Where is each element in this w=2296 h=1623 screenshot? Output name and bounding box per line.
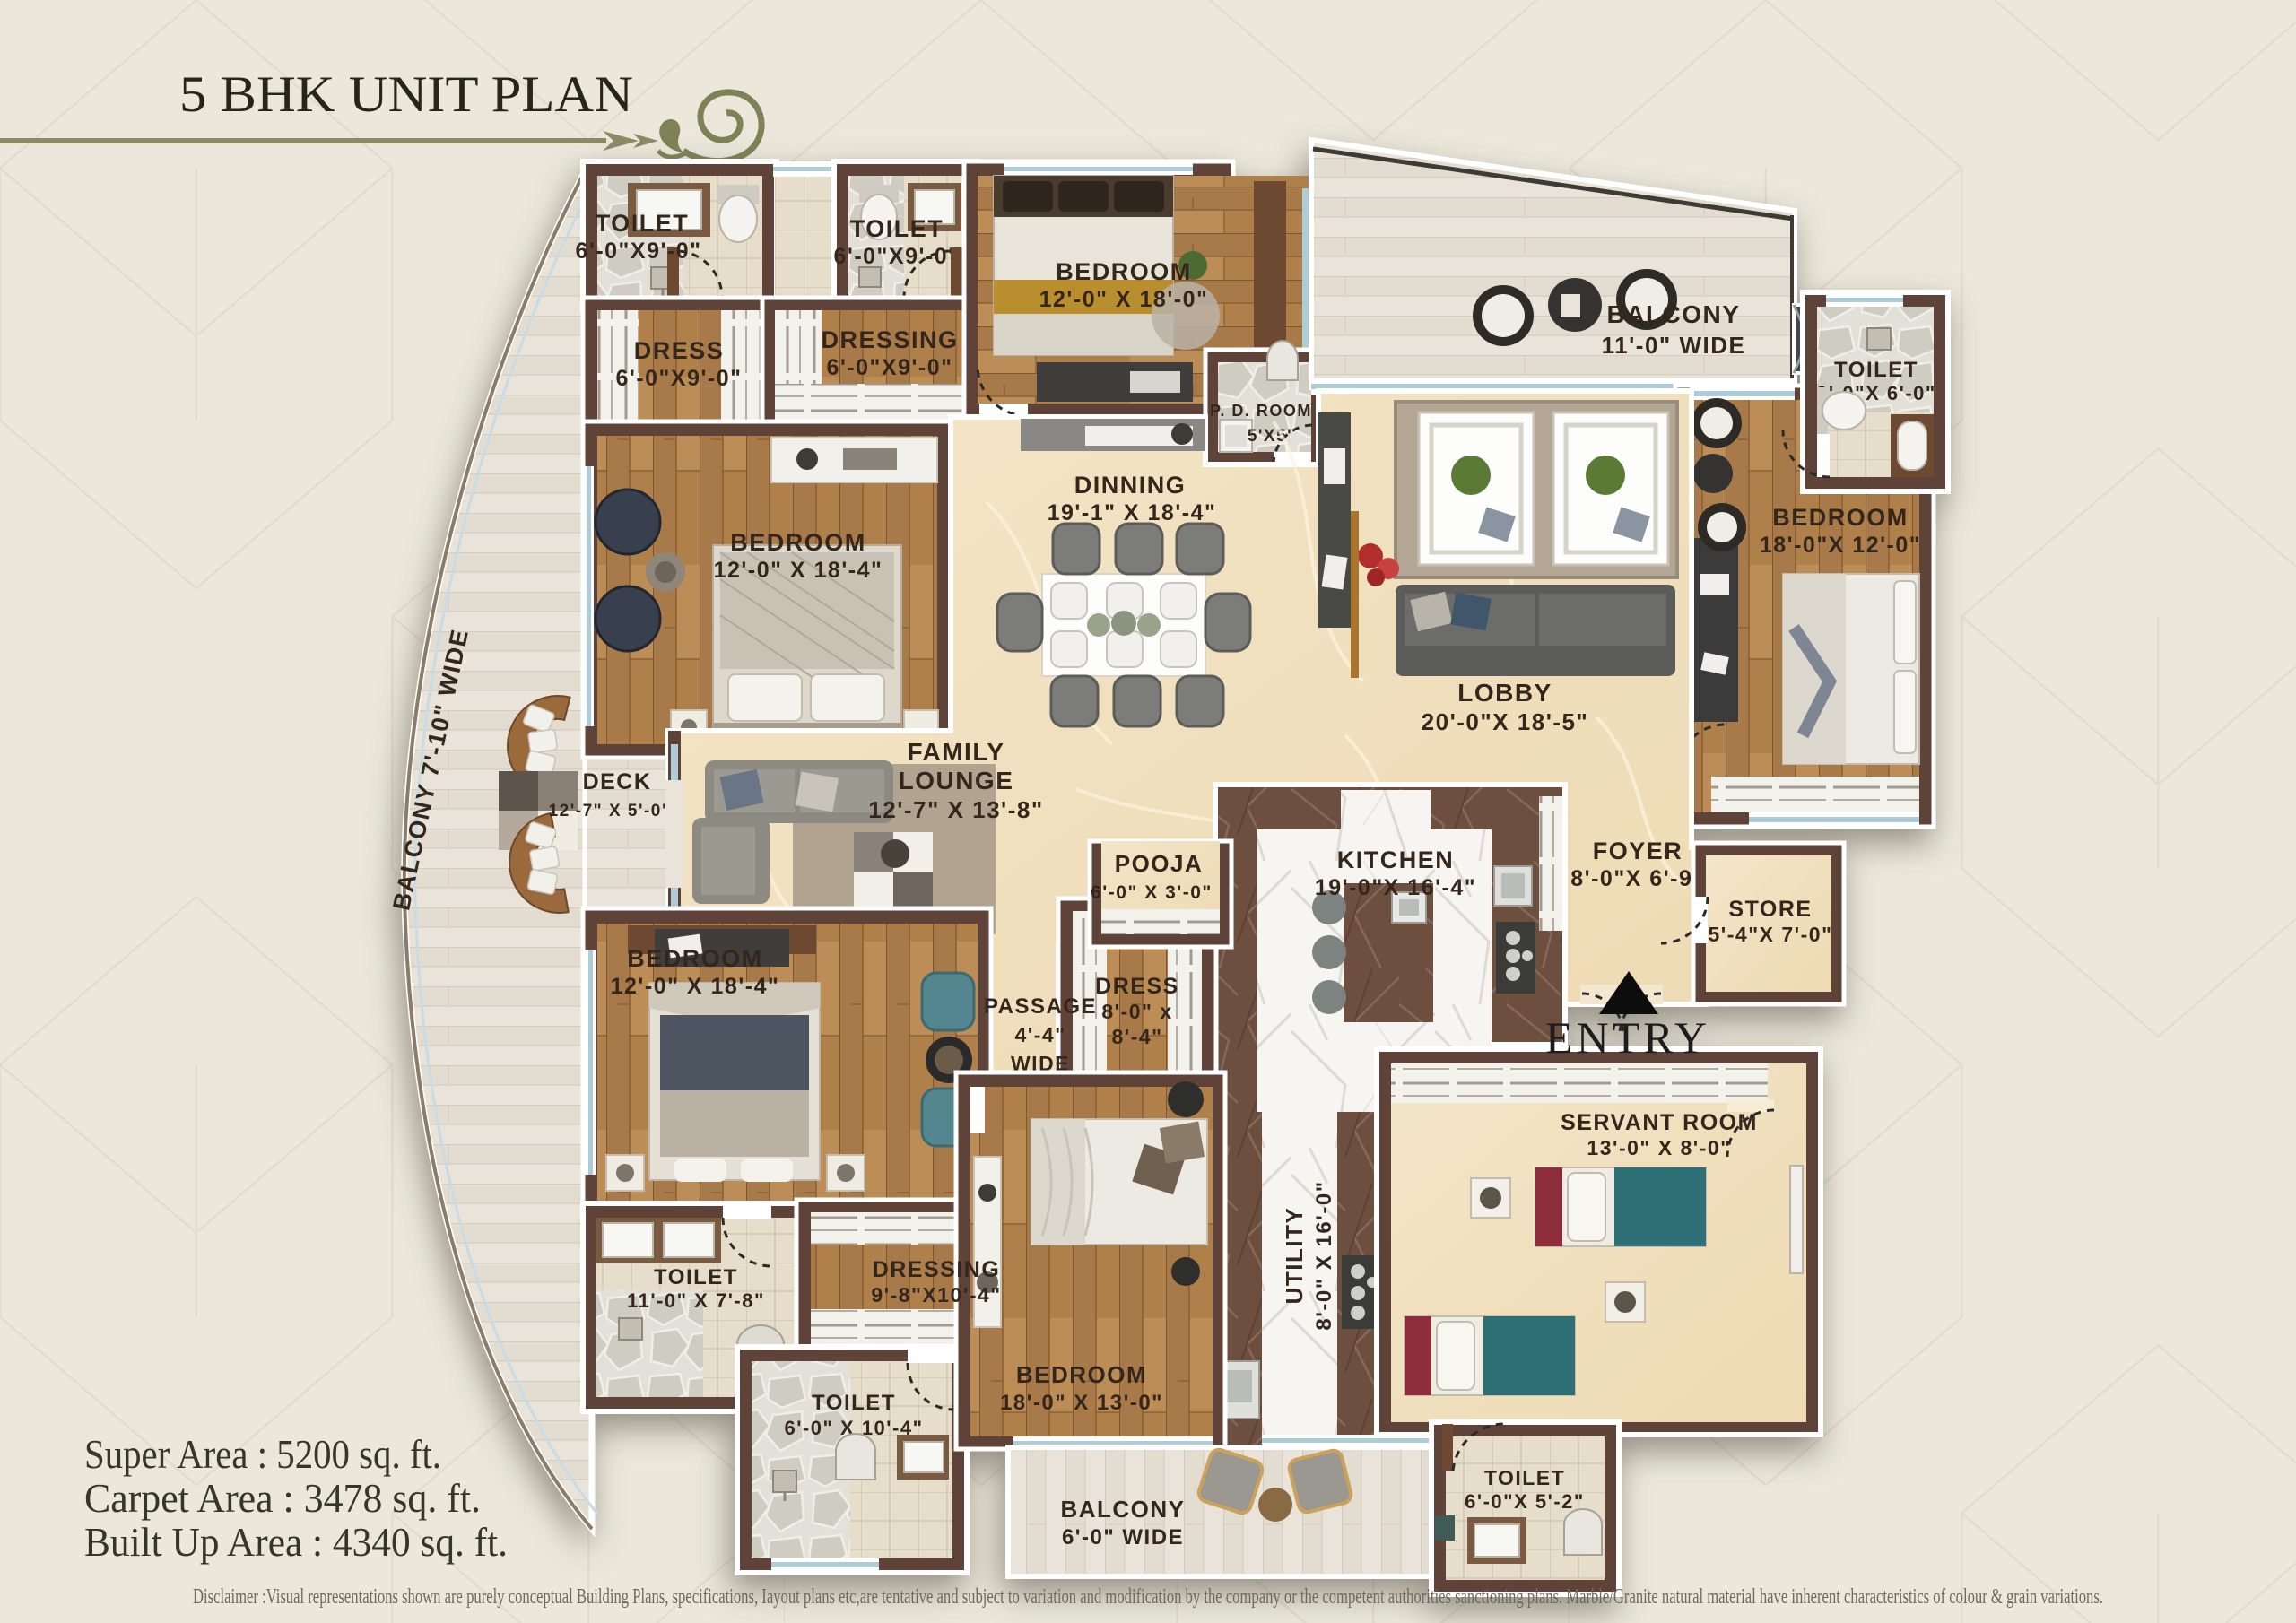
svg-text:Super Area : 5200 sq. ft.: Super Area : 5200 sq. ft. [84,1431,441,1477]
svg-text:BALCONY: BALCONY [1607,300,1741,328]
svg-text:BALCONY: BALCONY [1060,1496,1185,1523]
svg-text:STORE: STORE [1728,897,1812,922]
svg-text:DRESS: DRESS [634,337,725,364]
svg-text:18'-0"X 12'-0": 18'-0"X 12'-0" [1760,533,1921,558]
svg-text:12'-7" X 5'-0": 12'-7" X 5'-0" [549,802,672,820]
svg-text:11'-0" X 7'-8": 11'-0" X 7'-8" [627,1289,765,1312]
svg-text:6'-0"X9'-0": 6'-0"X9'-0" [833,244,960,269]
svg-text:BEDROOM: BEDROOM [1056,258,1192,285]
svg-text:BEDROOM: BEDROOM [730,529,866,556]
svg-text:DRESS: DRESS [1095,974,1179,999]
svg-text:20'-0"X 18'-5": 20'-0"X 18'-5" [1422,708,1589,735]
svg-text:8'-4": 8'-4" [1111,1025,1162,1048]
svg-text:6'-0" WIDE: 6'-0" WIDE [1062,1525,1184,1549]
svg-text:TOILET: TOILET [596,210,690,237]
svg-text:ENTRY: ENTRY [1545,1012,1710,1063]
svg-text:6'-0"X9'-0": 6'-0"X9'-0" [826,355,952,380]
svg-text:8'-0" X 16'-0": 8'-0" X 16'-0" [1312,1180,1336,1330]
svg-text:12'-0" X 18'-4": 12'-0" X 18'-4" [611,974,780,999]
svg-text:19'-1" X 18'-4": 19'-1" X 18'-4" [1048,500,1217,525]
svg-text:TOILET: TOILET [1834,358,1918,382]
svg-text:POOJA: POOJA [1115,850,1204,877]
svg-text:DRESSING: DRESSING [821,326,958,353]
svg-text:4'-4": 4'-4" [1014,1023,1065,1046]
svg-text:TOILET: TOILET [1484,1466,1565,1489]
svg-text:FOYER: FOYER [1593,838,1683,864]
svg-text:6'-0"X9'-0": 6'-0"X9'-0" [615,366,742,391]
svg-text:13'-0" X 8'-0": 13'-0" X 8'-0" [1587,1136,1731,1159]
svg-text:11'-0" WIDE: 11'-0" WIDE [1602,332,1746,359]
svg-text:6'-0" X 3'-0": 6'-0" X 3'-0" [1091,882,1213,903]
svg-text:6'-0"X9'-0": 6'-0"X9'-0" [575,239,701,264]
svg-text:DECK: DECK [583,769,652,794]
svg-text:BEDROOM: BEDROOM [1016,1361,1147,1388]
svg-text:12'-0" X 18'-0": 12'-0" X 18'-0" [1039,287,1209,312]
svg-text:12'-7" X 13'-8": 12'-7" X 13'-8" [868,796,1043,823]
svg-text:Disclaimer :Visual representat: Disclaimer :Visual representations shown… [193,1585,2103,1609]
svg-text:UTILITY: UTILITY [1281,1207,1308,1305]
svg-text:6'-0"X 5'-2": 6'-0"X 5'-2" [1465,1490,1585,1513]
svg-text:PASSAGE: PASSAGE [984,994,1097,1019]
svg-text:TOILET: TOILET [812,1391,896,1415]
svg-text:BEDROOM: BEDROOM [627,945,763,972]
svg-text:LOBBY: LOBBY [1457,679,1552,707]
svg-text:Built Up Area : 4340 sq. ft.: Built Up Area : 4340 sq. ft. [84,1519,508,1565]
svg-text:TOILET: TOILET [654,1265,738,1289]
svg-text:P. D. ROOM: P. D. ROOM [1210,402,1312,420]
svg-text:12'-0" X 18'-4": 12'-0" X 18'-4" [714,558,883,583]
svg-text:BEDROOM: BEDROOM [1772,504,1909,531]
svg-text:18'-0" X 13'-0": 18'-0" X 13'-0" [1000,1391,1163,1415]
svg-text:8'-0" x: 8'-0" x [1101,1000,1172,1023]
svg-text:19'-0"X 16'-4": 19'-0"X 16'-4" [1315,875,1476,900]
svg-text:5'-4"X 7'-0": 5'-4"X 7'-0" [1709,923,1833,946]
svg-text:DRESSING: DRESSING [873,1257,1001,1282]
svg-text:8'-0"X 6'-9": 8'-0"X 6'-9" [1570,866,1704,891]
svg-text:Carpet Area : 3478 sq. ft.: Carpet Area : 3478 sq. ft. [84,1475,481,1521]
svg-text:KITCHEN: KITCHEN [1337,846,1455,873]
svg-text:FAMILY: FAMILY [907,738,1004,766]
svg-text:LOUNGE: LOUNGE [899,767,1014,794]
svg-text:SERVANT ROOM: SERVANT ROOM [1561,1110,1758,1135]
svg-text:DINNING: DINNING [1074,472,1187,499]
svg-text:9'-8"X10'-4": 9'-8"X10'-4" [871,1283,1001,1306]
svg-text:TOILET: TOILET [850,215,944,242]
svg-text:5 BHK UNIT PLAN: 5 BHK UNIT PLAN [179,66,633,123]
